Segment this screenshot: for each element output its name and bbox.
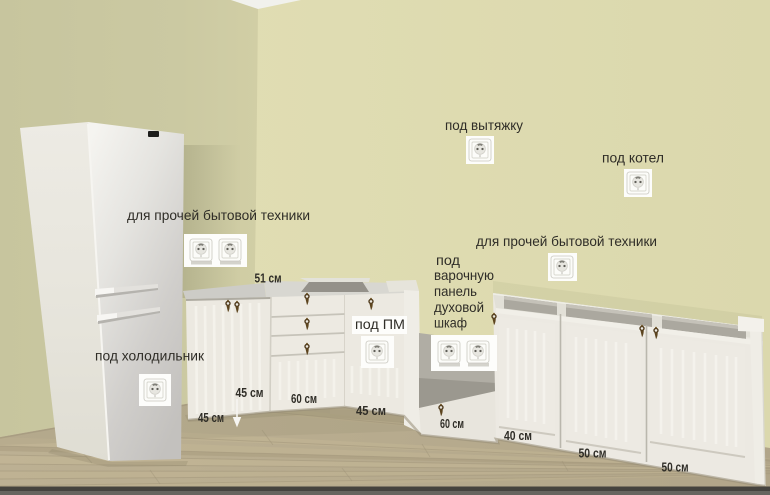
svg-text:варочную: варочную (434, 267, 494, 283)
svg-text:50 см: 50 см (579, 447, 607, 461)
svg-text:45 см: 45 см (198, 411, 224, 425)
svg-text:под ПМ: под ПМ (355, 316, 405, 332)
svg-text:40 см: 40 см (504, 429, 532, 443)
svg-text:60 см: 60 см (291, 392, 317, 406)
svg-text:духовой: духовой (434, 299, 484, 315)
svg-text:60 см: 60 см (440, 417, 464, 431)
svg-text:для прочей бытовой техники: для прочей бытовой техники (127, 207, 310, 223)
svg-text:под котел: под котел (602, 150, 664, 166)
svg-text:шкаф: шкаф (434, 315, 467, 331)
svg-text:50 см: 50 см (662, 461, 689, 475)
svg-text:под вытяжку: под вытяжку (445, 117, 523, 133)
svg-text:под холодильник: под холодильник (95, 348, 205, 364)
svg-text:51 см: 51 см (255, 272, 282, 286)
svg-text:45 см: 45 см (356, 404, 386, 418)
svg-text:для прочей бытовой техники: для прочей бытовой техники (476, 233, 657, 249)
svg-text:45 см: 45 см (236, 386, 264, 400)
svg-text:панель: панель (434, 283, 477, 299)
svg-text:под: под (436, 252, 460, 268)
